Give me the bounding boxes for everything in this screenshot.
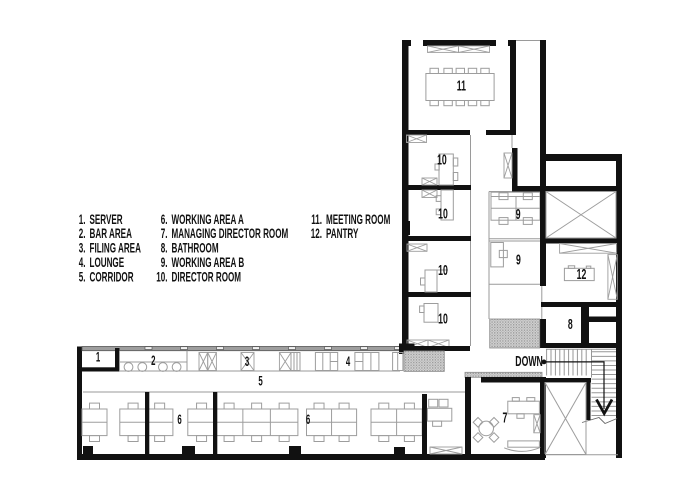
svg-text:BAR AREA: BAR AREA [90,227,132,242]
svg-text:6: 6 [177,413,181,428]
svg-text:10: 10 [438,261,448,278]
svg-text:11: 11 [457,77,466,94]
svg-text:BATHROOM: BATHROOM [172,242,219,257]
svg-text:6: 6 [306,413,310,428]
svg-text:4: 4 [346,355,351,370]
svg-text:5.: 5. [79,270,86,285]
svg-text:1: 1 [96,350,100,365]
svg-text:DIRECTOR ROOM: DIRECTOR ROOM [172,270,242,285]
svg-text:10: 10 [437,151,447,168]
svg-text:DOWN: DOWN [515,352,543,369]
svg-text:FILING AREA: FILING AREA [90,242,141,257]
svg-text:3: 3 [245,355,249,370]
svg-text:8.: 8. [161,242,168,257]
svg-text:9.: 9. [161,256,168,271]
svg-text:5: 5 [258,374,262,389]
svg-text:MANAGING DIRECTOR ROOM: MANAGING DIRECTOR ROOM [172,227,289,242]
svg-text:9: 9 [516,205,521,222]
svg-text:9: 9 [516,251,521,268]
svg-text:12: 12 [577,266,587,283]
svg-text:4.: 4. [79,256,86,271]
svg-text:3.: 3. [79,242,86,257]
svg-text:10.: 10. [156,270,167,285]
svg-text:6.: 6. [161,213,168,228]
svg-text:CORRIDOR: CORRIDOR [90,270,134,285]
svg-text:PANTRY: PANTRY [326,227,359,242]
svg-text:2: 2 [151,354,155,369]
svg-text:7.: 7. [161,227,168,242]
svg-text:12.: 12. [311,227,322,242]
svg-text:LOUNGE: LOUNGE [90,256,125,271]
svg-text:8: 8 [568,316,573,333]
svg-text:1.: 1. [79,213,86,228]
svg-text:2.: 2. [79,227,86,242]
svg-text:10: 10 [438,205,448,222]
svg-text:SERVER: SERVER [90,213,123,228]
svg-text:7: 7 [502,409,507,426]
svg-text:MEETING ROOM: MEETING ROOM [326,213,390,228]
svg-text:WORKING AREA A: WORKING AREA A [172,213,244,228]
svg-text:WORKING AREA B: WORKING AREA B [172,256,245,271]
svg-text:11.: 11. [311,213,322,228]
svg-text:10: 10 [438,310,448,327]
